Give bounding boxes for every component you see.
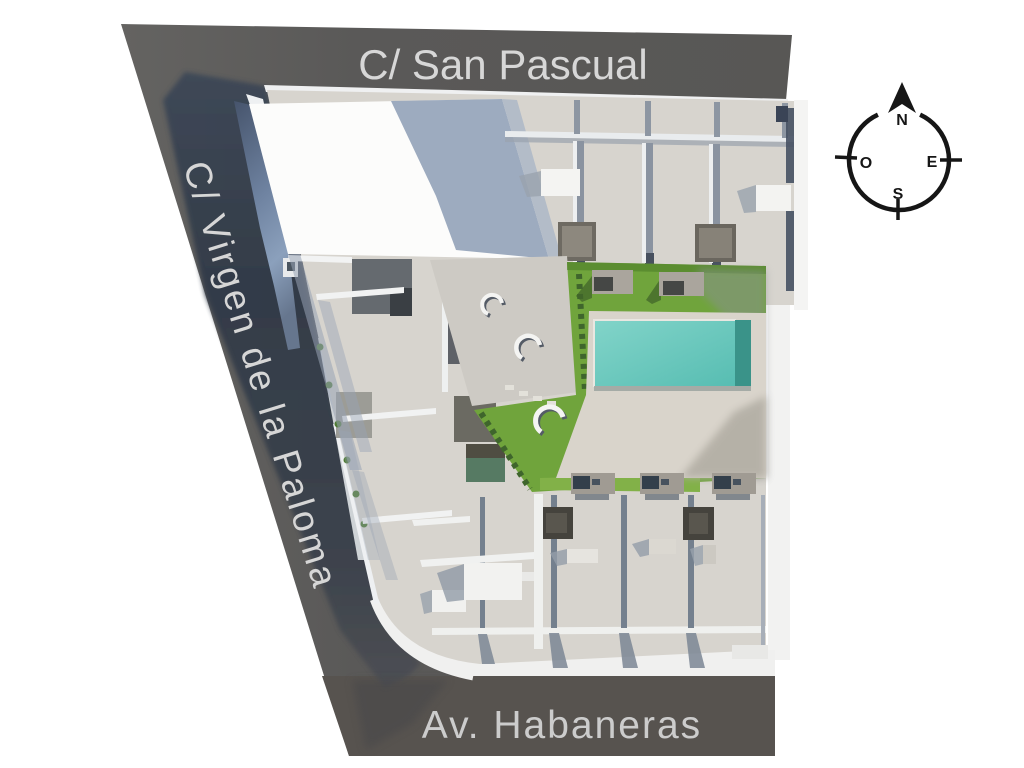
svg-text:E: E [927,154,938,171]
svg-text:N: N [896,112,908,129]
svg-text:S: S [893,186,904,203]
svg-text:O: O [860,155,872,172]
svg-text:C/ San Pascual: C/ San Pascual [358,41,648,88]
svg-text:Av. Habaneras: Av. Habaneras [422,704,702,747]
